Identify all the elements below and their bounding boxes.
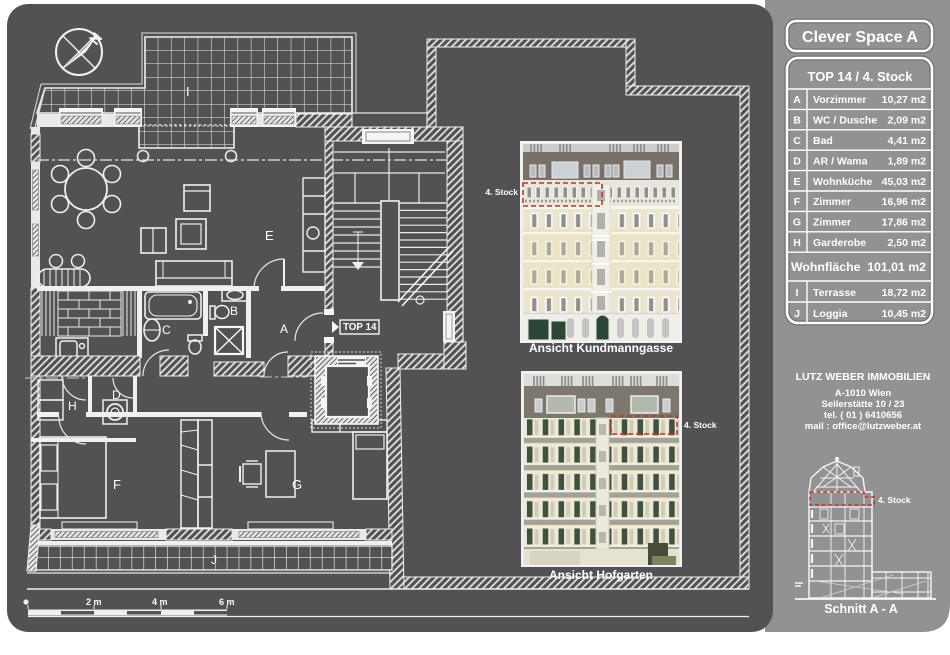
svg-text:Schnitt A - A: Schnitt A - A (824, 602, 898, 616)
svg-text:J: J (211, 553, 217, 567)
svg-text:4 m: 4 m (152, 597, 168, 607)
svg-text:C: C (162, 323, 171, 337)
svg-text:45,03 m2: 45,03 m2 (882, 176, 927, 188)
svg-text:I: I (186, 84, 190, 99)
svg-text:1,89 m2: 1,89 m2 (887, 155, 926, 167)
svg-text:Loggia: Loggia (813, 308, 848, 320)
svg-text:A: A (280, 322, 288, 336)
svg-text:10,45 m2: 10,45 m2 (882, 308, 927, 320)
svg-text:16,96 m2: 16,96 m2 (882, 196, 927, 208)
svg-text:WC / Dusche: WC / Dusche (813, 115, 877, 127)
svg-text:4. Stock: 4. Stock (485, 187, 518, 197)
svg-text:Garderobe: Garderobe (813, 237, 866, 249)
svg-text:E: E (265, 228, 274, 243)
svg-text:Clever Space A: Clever Space A (802, 29, 918, 46)
svg-text:H: H (793, 237, 801, 249)
svg-text:Zimmer: Zimmer (813, 196, 851, 208)
svg-text:101,01 m2: 101,01 m2 (867, 260, 926, 274)
svg-text:4. Stock: 4. Stock (684, 420, 717, 430)
svg-text:2,09 m2: 2,09 m2 (887, 115, 926, 127)
svg-text:2,50 m2: 2,50 m2 (887, 237, 926, 249)
svg-text:10,27 m2: 10,27 m2 (882, 94, 927, 106)
svg-text:D: D (793, 155, 801, 167)
svg-text:tel. ( 01 ) 6410656: tel. ( 01 ) 6410656 (824, 410, 902, 421)
svg-text:F: F (113, 477, 121, 492)
svg-text:A: A (793, 94, 801, 106)
svg-text:J: J (794, 308, 800, 320)
svg-text:H: H (68, 399, 77, 413)
svg-text:E: E (793, 176, 800, 188)
svg-text:TOP 14: TOP 14 (343, 322, 377, 333)
svg-text:Zimmer: Zimmer (813, 217, 851, 229)
svg-text:B: B (793, 115, 801, 127)
svg-text:Wohnküche: Wohnküche (813, 176, 872, 188)
svg-text:I: I (796, 287, 799, 299)
svg-text:AR / Wama: AR / Wama (813, 155, 868, 167)
svg-text:B: B (230, 304, 238, 318)
svg-text:G: G (793, 217, 801, 229)
svg-text:G: G (292, 477, 302, 492)
svg-text:TOP 14 / 4. Stock: TOP 14 / 4. Stock (807, 69, 913, 84)
svg-text:4,41 m2: 4,41 m2 (887, 135, 926, 147)
svg-text:Ansicht Kundmanngasse: Ansicht Kundmanngasse (529, 341, 673, 355)
svg-text:4. Stock: 4. Stock (878, 495, 911, 505)
svg-text:C: C (793, 135, 801, 147)
svg-text:Terrasse: Terrasse (813, 287, 856, 299)
svg-text:Vorzimmer: Vorzimmer (813, 94, 867, 106)
svg-text:LUTZ WEBER IMMOBILIEN: LUTZ WEBER IMMOBILIEN (796, 371, 931, 383)
svg-text:Seilerstätte 10 / 23: Seilerstätte 10 / 23 (822, 399, 905, 410)
svg-text:F: F (794, 196, 801, 208)
svg-text:Bad: Bad (813, 135, 833, 147)
svg-text:17,86 m2: 17,86 m2 (882, 217, 927, 229)
svg-text:mail : office@lutzweber.at: mail : office@lutzweber.at (805, 421, 922, 432)
svg-text:A-1010 Wien: A-1010 Wien (835, 388, 892, 399)
svg-text:Ansicht Hofgarten: Ansicht Hofgarten (549, 568, 653, 582)
svg-text:Wohnfläche: Wohnfläche (791, 260, 861, 274)
svg-text:18,72 m2: 18,72 m2 (882, 287, 927, 299)
